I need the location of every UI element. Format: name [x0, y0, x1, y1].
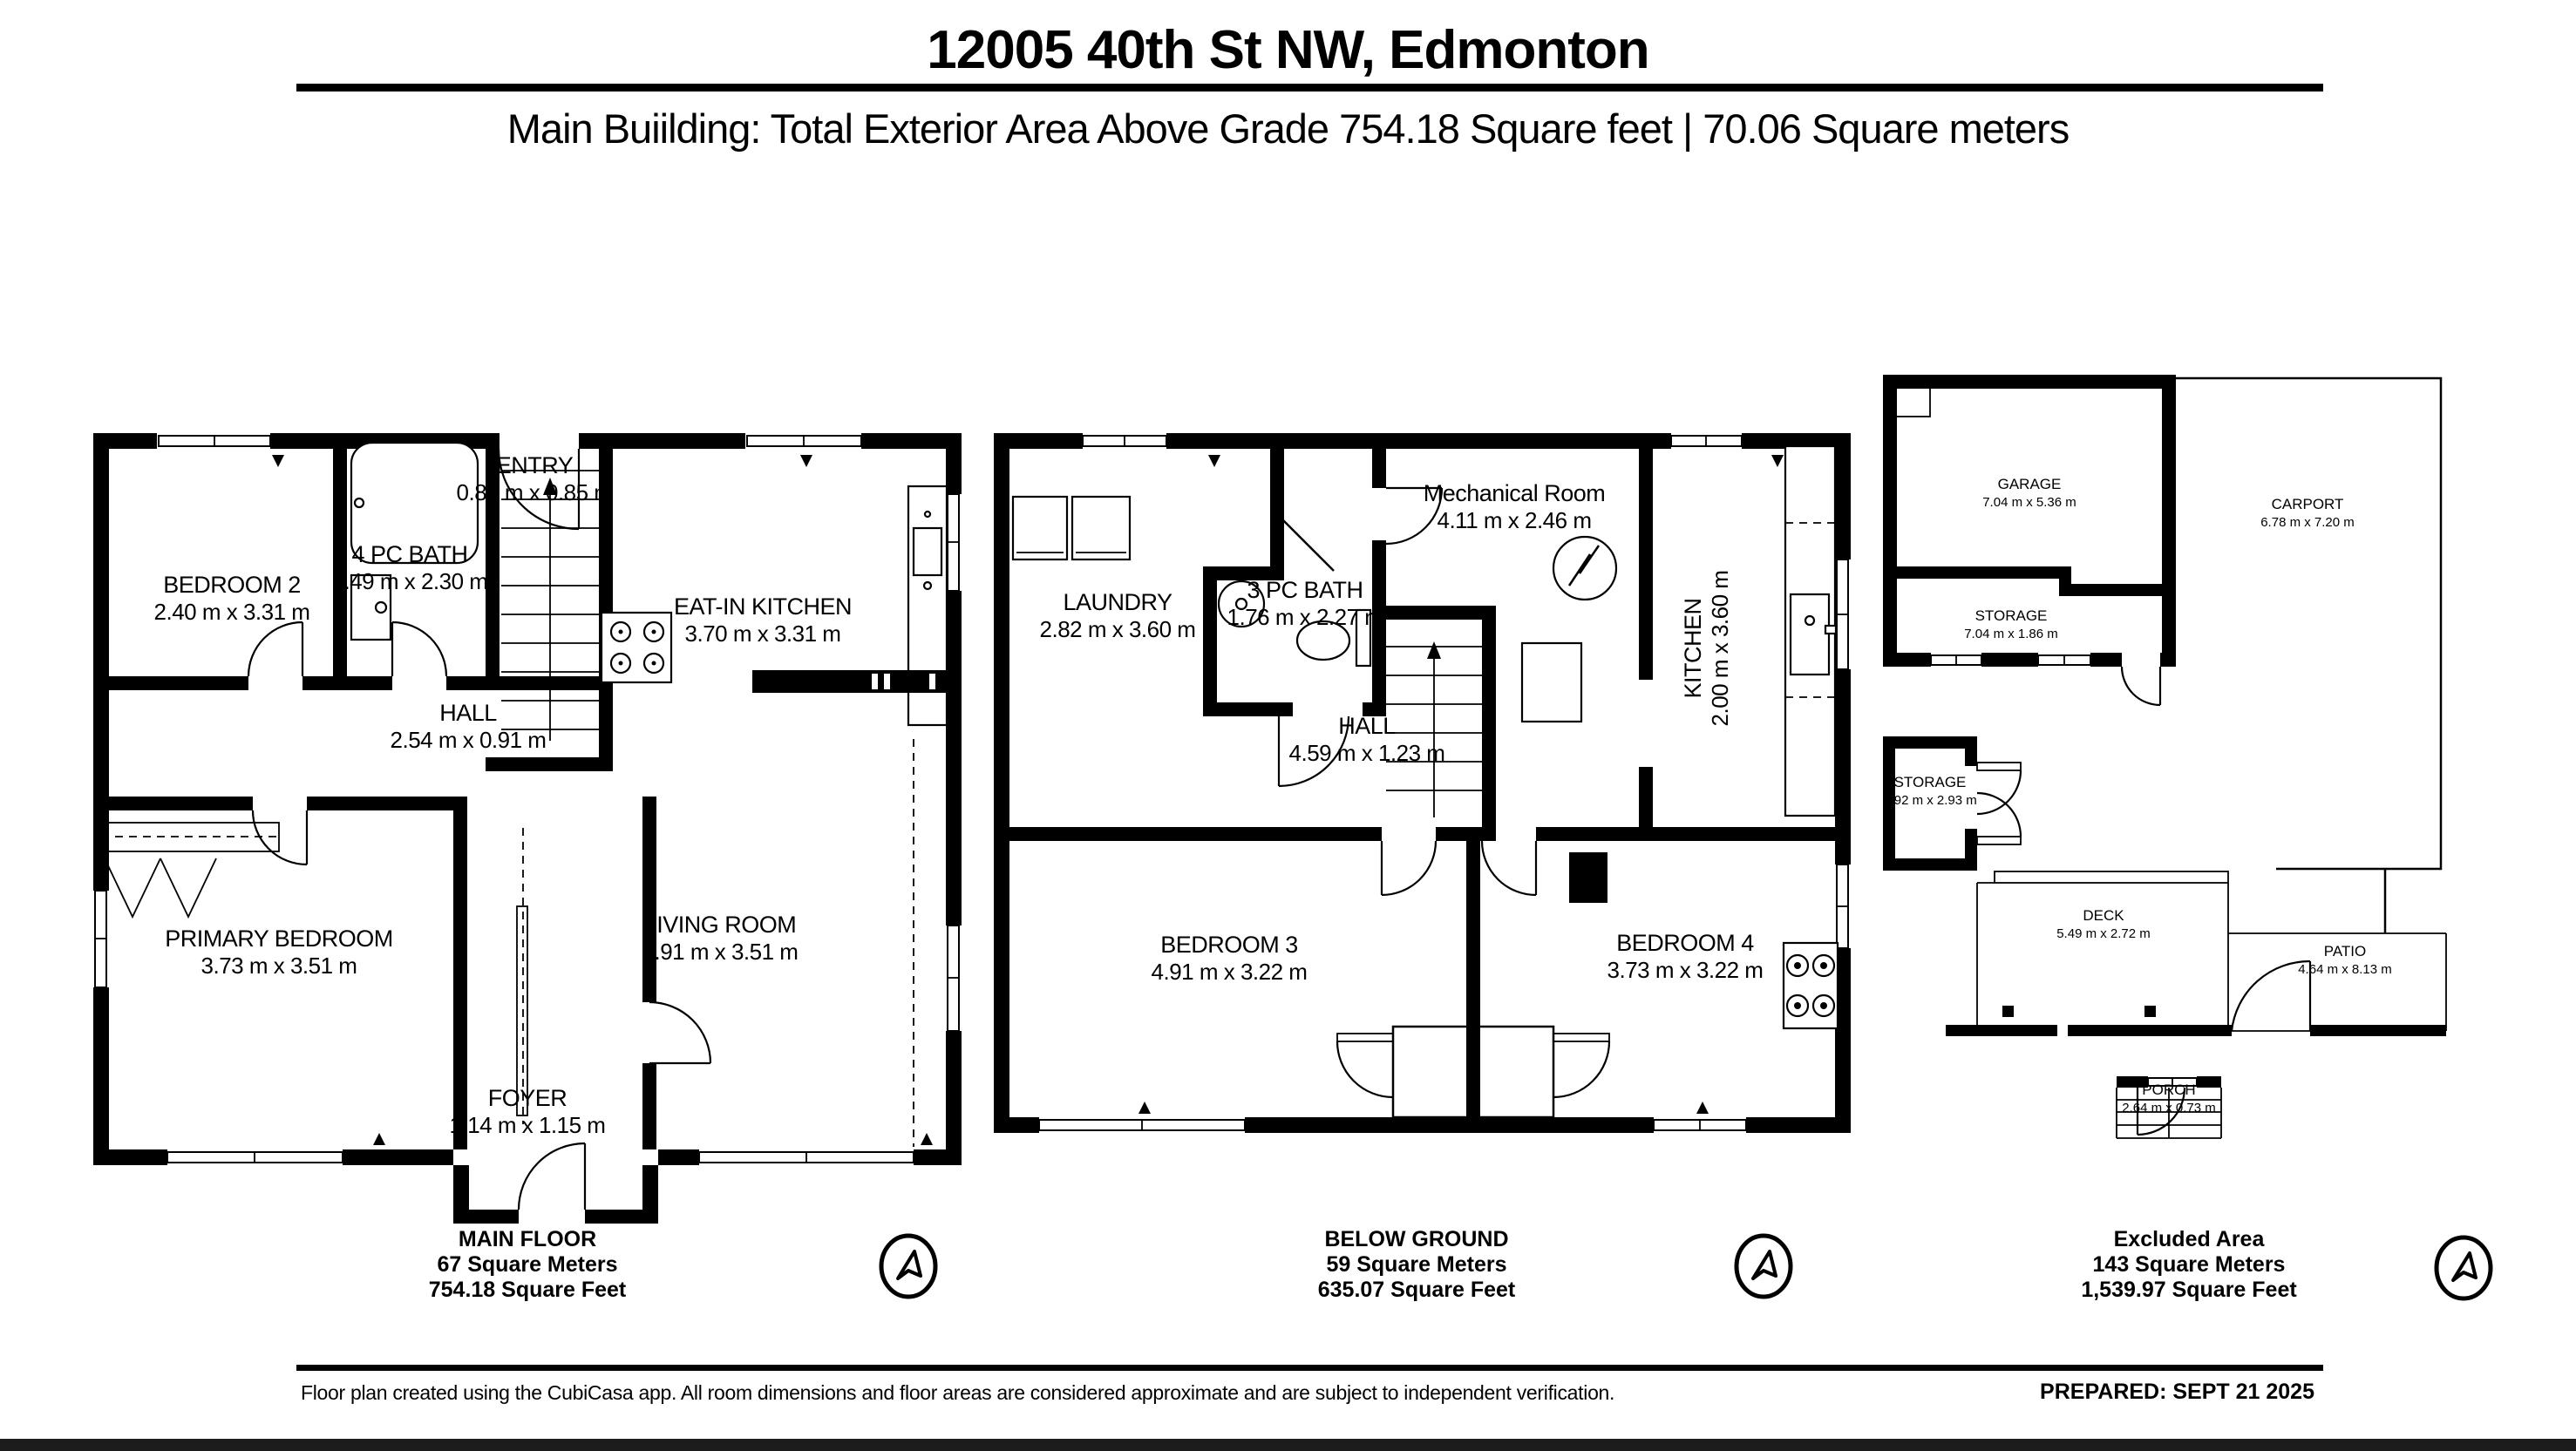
footer-divider: [296, 1365, 2323, 1371]
room-label-mechanical-room: Mechanical Room 4.11 m x 2.46 m: [1424, 480, 1606, 534]
room-label-bedroom-2: BEDROOM 2 2.40 m x 3.31 m: [154, 572, 310, 626]
room-name: BEDROOM 4: [1607, 930, 1764, 957]
floor-area-meters: 143 Square Meters: [1988, 1252, 2389, 1278]
floor-plan-page: 12005 40th St NW, Edmonton Main Buiildin…: [0, 0, 2576, 1451]
room-label-patio: PATIO 4.64 m x 8.13 m: [2298, 942, 2392, 979]
prepared-date: PREPARED: SEPT 21 2025: [2040, 1380, 2314, 1405]
room-dims: 3.70 m x 3.31 m: [674, 620, 852, 648]
room-label-living-room: LIVING ROOM 4.91 m x 3.51 m: [642, 912, 799, 966]
room-label-storage-small: STORAGE 1.92 m x 2.93 m: [1883, 773, 1977, 810]
area-summary-excluded: Excluded Area 143 Square Meters 1,539.97…: [1988, 1227, 2389, 1303]
room-name: BEDROOM 2: [154, 572, 310, 599]
room-dims: 1.76 m x 2.27 m: [1227, 604, 1383, 631]
floor-name: Excluded Area: [1988, 1227, 2389, 1252]
room-label-4pc-bath: 4 PC BATH 1.49 m x 2.30 m: [332, 541, 488, 595]
room-name: GARAGE: [1982, 475, 2076, 493]
room-dims: 6.78 m x 7.20 m: [2260, 513, 2355, 532]
room-dims: 0.85 m x 0.85 m: [457, 479, 613, 506]
floor-name: BELOW GROUND: [1216, 1227, 1617, 1252]
room-name: HALL: [1289, 713, 1445, 740]
room-label-porch: PORCH 2.64 m x 0.73 m: [2122, 1081, 2216, 1117]
room-dims: 2.40 m x 3.31 m: [154, 599, 310, 626]
compass-icon: [1731, 1231, 1796, 1301]
room-label-bedroom-4: BEDROOM 4 3.73 m x 3.22 m: [1607, 930, 1764, 984]
room-dims: 5.49 m x 2.72 m: [2056, 925, 2151, 943]
room-label-laundry: LAUNDRY 2.82 m x 3.60 m: [1040, 589, 1196, 643]
room-dims: 4.59 m x 1.23 m: [1289, 740, 1445, 767]
floor-area-feet: 635.07 Square Feet: [1216, 1278, 1617, 1303]
room-dims: 7.04 m x 5.36 m: [1982, 493, 2076, 512]
room-name: BEDROOM 3: [1152, 932, 1308, 959]
room-name: KITCHEN: [1680, 571, 1707, 727]
room-dims: 2.00 m x 3.60 m: [1707, 571, 1734, 727]
room-label-storage-garage: STORAGE 7.04 m x 1.86 m: [1964, 607, 2058, 643]
room-label-hall-below: HALL 4.59 m x 1.23 m: [1289, 713, 1445, 767]
excluded-area-plan-drawing: [1883, 375, 2446, 1138]
room-name: CARPORT: [2260, 495, 2355, 513]
room-name: 3 PC BATH: [1227, 577, 1383, 604]
room-name: LAUNDRY: [1040, 589, 1196, 616]
room-dims: 2.82 m x 3.60 m: [1040, 616, 1196, 643]
room-label-kitchen-below: KITCHEN 2.00 m x 3.60 m: [1680, 571, 1734, 727]
room-dims: 1.14 m x 1.15 m: [450, 1112, 606, 1139]
room-label-3pc-bath: 3 PC BATH 1.76 m x 2.27 m: [1227, 577, 1383, 631]
room-name: PORCH: [2122, 1081, 2216, 1099]
room-name: Mechanical Room: [1424, 480, 1606, 507]
room-dims: 1.92 m x 2.93 m: [1883, 791, 1977, 810]
room-label-carport: CARPORT 6.78 m x 7.20 m: [2260, 495, 2355, 532]
room-dims: 7.04 m x 1.86 m: [1964, 625, 2058, 643]
compass-icon: [876, 1231, 941, 1301]
floor-area-meters: 59 Square Meters: [1216, 1252, 1617, 1278]
room-dims: 4.64 m x 8.13 m: [2298, 960, 2392, 979]
room-label-eat-in-kitchen: EAT-IN KITCHEN 3.70 m x 3.31 m: [674, 593, 852, 648]
below-ground-plan-drawing: [994, 433, 1851, 1133]
floor-area-feet: 754.18 Square Feet: [327, 1278, 728, 1303]
room-label-primary-bedroom: PRIMARY BEDROOM 3.73 m x 3.51 m: [165, 926, 393, 980]
floor-name: MAIN FLOOR: [327, 1227, 728, 1252]
room-name: PRIMARY BEDROOM: [165, 926, 393, 953]
room-label-bedroom-3: BEDROOM 3 4.91 m x 3.22 m: [1152, 932, 1308, 986]
room-name: DECK: [2056, 906, 2151, 925]
room-dims: 2.64 m x 0.73 m: [2122, 1099, 2216, 1117]
room-dims: 3.73 m x 3.51 m: [165, 953, 393, 980]
area-summary-main-floor: MAIN FLOOR 67 Square Meters 754.18 Squar…: [327, 1227, 728, 1303]
footer-disclaimer: Floor plan created using the CubiCasa ap…: [301, 1381, 1614, 1405]
room-label-entry: ENTRY 0.85 m x 0.85 m: [457, 452, 613, 506]
room-dims: 4.11 m x 2.46 m: [1424, 507, 1606, 534]
room-dims: 3.73 m x 3.22 m: [1607, 957, 1764, 984]
room-name: STORAGE: [1883, 773, 1977, 791]
room-label-deck: DECK 5.49 m x 2.72 m: [2056, 906, 2151, 943]
room-name: STORAGE: [1964, 607, 2058, 625]
room-dims: 4.91 m x 3.22 m: [1152, 959, 1308, 986]
compass-icon: [2431, 1233, 2496, 1303]
room-label-garage: GARAGE 7.04 m x 5.36 m: [1982, 475, 2076, 512]
room-dims: 4.91 m x 3.51 m: [642, 939, 799, 966]
room-name: EAT-IN KITCHEN: [674, 593, 852, 620]
room-dims: 1.49 m x 2.30 m: [332, 568, 488, 595]
room-label-foyer: FOYER 1.14 m x 1.15 m: [450, 1085, 606, 1139]
floor-area-meters: 67 Square Meters: [327, 1252, 728, 1278]
floor-area-feet: 1,539.97 Square Feet: [1988, 1278, 2389, 1303]
room-name: HALL: [391, 700, 547, 727]
bottom-bar: [0, 1439, 2576, 1451]
room-name: FOYER: [450, 1085, 606, 1112]
area-summary-below-ground: BELOW GROUND 59 Square Meters 635.07 Squ…: [1216, 1227, 1617, 1303]
room-name: 4 PC BATH: [332, 541, 488, 568]
room-name: ENTRY: [457, 452, 613, 479]
room-label-hall-main: HALL 2.54 m x 0.91 m: [391, 700, 547, 754]
room-name: PATIO: [2298, 942, 2392, 960]
room-dims: 2.54 m x 0.91 m: [391, 727, 547, 754]
room-name: LIVING ROOM: [642, 912, 799, 939]
